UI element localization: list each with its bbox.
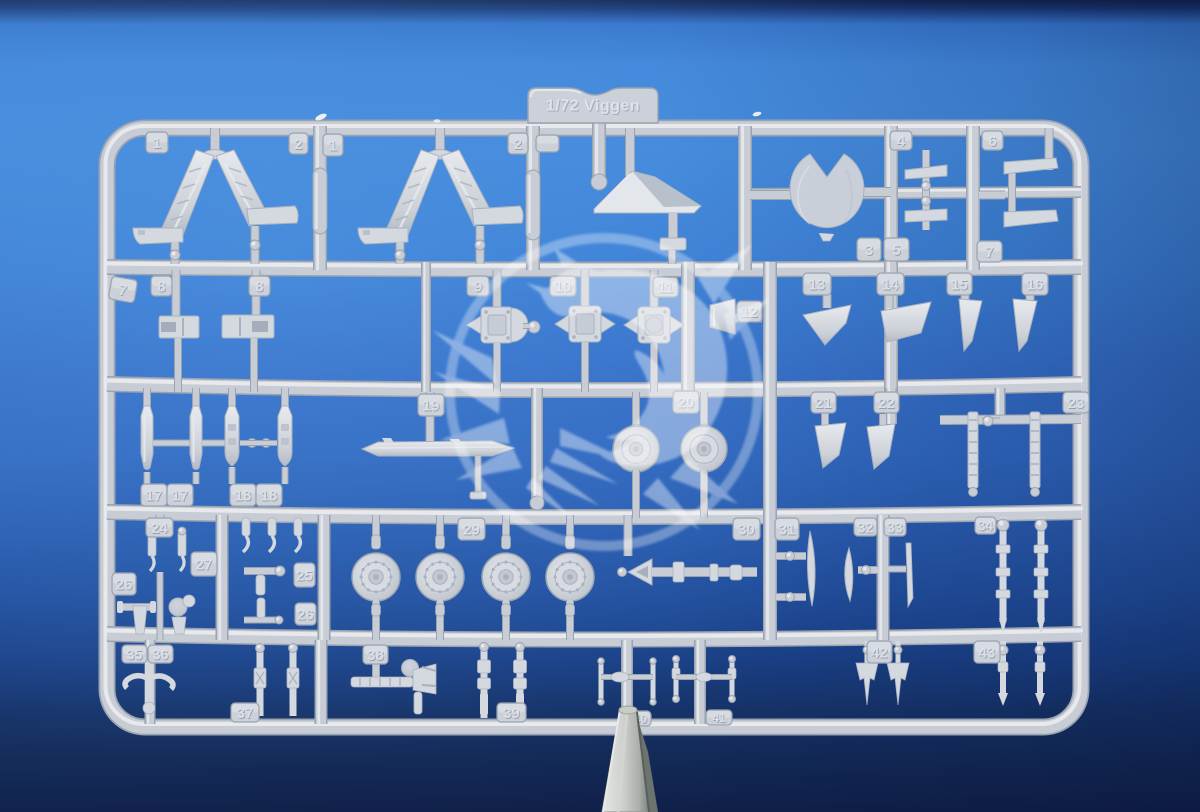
svg-text:36: 36 [152, 647, 168, 663]
svg-text:41: 41 [712, 711, 726, 725]
svg-text:17: 17 [146, 488, 163, 505]
svg-text:33: 33 [887, 520, 903, 536]
svg-text:27: 27 [196, 557, 213, 574]
svg-text:8: 8 [157, 279, 165, 296]
svg-text:21: 21 [815, 395, 832, 412]
svg-text:4: 4 [897, 133, 906, 150]
svg-text:39: 39 [503, 705, 520, 722]
svg-text:1/72 Viggen: 1/72 Viggen [546, 98, 640, 115]
svg-text:18: 18 [261, 488, 278, 505]
svg-text:22: 22 [878, 395, 895, 412]
svg-text:18: 18 [235, 488, 252, 505]
svg-text:14: 14 [882, 277, 899, 294]
svg-text:30: 30 [738, 522, 755, 539]
svg-text:1: 1 [153, 135, 161, 152]
svg-text:1: 1 [329, 138, 337, 155]
svg-text:2: 2 [514, 136, 522, 153]
svg-text:8: 8 [255, 279, 263, 296]
svg-text:19: 19 [423, 398, 440, 415]
svg-text:42: 42 [871, 645, 888, 662]
svg-text:13: 13 [809, 277, 826, 294]
svg-text:37: 37 [237, 705, 254, 722]
svg-text:38: 38 [367, 647, 384, 664]
svg-text:7: 7 [985, 244, 993, 261]
svg-text:43: 43 [979, 645, 996, 662]
svg-text:23: 23 [1068, 395, 1085, 412]
svg-text:16: 16 [1027, 277, 1044, 294]
svg-text:6: 6 [988, 133, 996, 150]
svg-text:31: 31 [779, 522, 796, 539]
svg-text:29: 29 [463, 522, 480, 539]
svg-text:2: 2 [294, 136, 302, 153]
svg-text:17: 17 [172, 488, 189, 505]
svg-text:5: 5 [892, 242, 900, 259]
svg-text:32: 32 [857, 520, 873, 536]
svg-text:35: 35 [126, 647, 142, 663]
svg-text:26: 26 [297, 607, 314, 624]
svg-text:24: 24 [151, 520, 168, 537]
svg-text:25: 25 [296, 568, 313, 585]
svg-text:15: 15 [951, 277, 968, 294]
svg-text:34: 34 [978, 519, 994, 534]
svg-text:3: 3 [865, 242, 873, 259]
svg-text:26: 26 [116, 577, 133, 594]
